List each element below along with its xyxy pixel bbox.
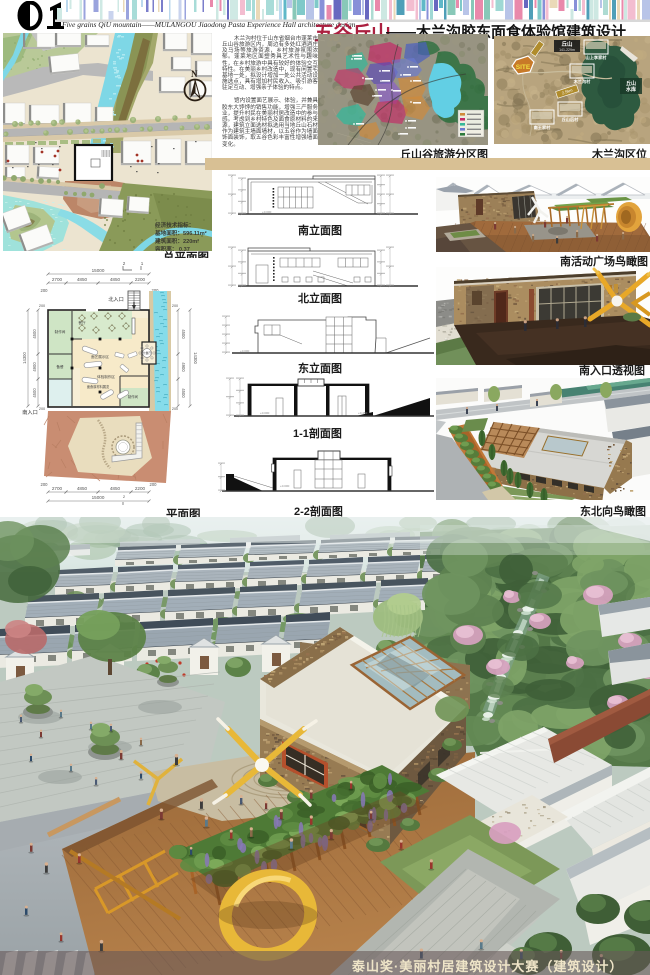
svg-text:+0.000: +0.000	[280, 484, 290, 488]
svg-text:餐厅: 餐厅	[78, 320, 86, 325]
svg-text:山上李家村: 山上李家村	[586, 54, 608, 61]
svg-text:1: 1	[141, 261, 144, 266]
svg-text:制作间: 制作间	[128, 394, 139, 399]
svg-text:200: 200	[150, 482, 158, 487]
svg-text:14300: 14300	[22, 352, 27, 364]
svg-text:水库: 水库	[625, 86, 636, 93]
svg-text:丘山: 丘山	[561, 40, 573, 48]
svg-text:基地面积：596.11m²: 基地面积：596.11m²	[154, 229, 207, 237]
svg-text:200: 200	[172, 407, 178, 411]
svg-text:2200: 2200	[135, 486, 146, 491]
svg-text:北入口: 北入口	[108, 295, 124, 303]
svg-text:4900: 4900	[181, 362, 186, 372]
svg-text:+0.450: +0.450	[358, 411, 368, 415]
svg-text:4500: 4500	[181, 388, 186, 398]
svg-text:体验制作区: 体验制作区	[97, 374, 115, 379]
svg-text:4900: 4900	[32, 362, 37, 372]
svg-text:+0.000: +0.000	[260, 411, 270, 415]
svg-text:2700: 2700	[52, 486, 63, 491]
svg-text:4850: 4850	[77, 277, 88, 282]
svg-text:4850: 4850	[77, 486, 88, 491]
svg-text:200: 200	[39, 407, 45, 411]
svg-text:200: 200	[41, 482, 49, 487]
svg-text:制作间: 制作间	[55, 329, 66, 334]
svg-text:南王家村: 南王家村	[534, 124, 552, 131]
svg-text:+0.000: +0.000	[262, 210, 272, 214]
svg-text:2: 2	[123, 261, 126, 266]
svg-text:4850: 4850	[110, 486, 121, 491]
svg-text:15000: 15000	[92, 495, 105, 500]
svg-text:南入口: 南入口	[22, 408, 38, 416]
svg-text:15000: 15000	[92, 268, 105, 273]
svg-text:141-229m: 141-229m	[559, 48, 575, 52]
svg-text:N: N	[191, 69, 198, 79]
svg-text:建筑面积：220m²: 建筑面积：220m²	[154, 237, 199, 245]
svg-text:面食原材料展览: 面食原材料展览	[87, 384, 109, 389]
svg-text:经济技术指标：: 经济技术指标：	[155, 221, 194, 229]
svg-text:14300: 14300	[193, 352, 198, 364]
svg-text:200: 200	[41, 288, 49, 293]
svg-text:2200: 2200	[135, 277, 146, 282]
svg-text:2700: 2700	[52, 277, 63, 282]
svg-text:面艺展示区: 面艺展示区	[91, 354, 109, 359]
svg-text:200: 200	[172, 304, 178, 308]
svg-text:+0.000: +0.000	[240, 349, 250, 353]
svg-text:SITE: SITE	[516, 64, 531, 71]
svg-text:大餐厅: 大餐厅	[142, 350, 151, 355]
svg-text:200: 200	[39, 304, 45, 308]
svg-text:4500: 4500	[32, 388, 37, 398]
svg-text:丘山后村: 丘山后村	[562, 116, 580, 123]
svg-text:丘山: 丘山	[626, 80, 636, 87]
svg-text:木兰沟村: 木兰沟村	[573, 78, 592, 85]
svg-text:备餐: 备餐	[56, 364, 64, 369]
svg-text:4850: 4850	[110, 277, 121, 282]
svg-text:4500: 4500	[32, 329, 37, 339]
svg-text:4500: 4500	[181, 329, 186, 339]
